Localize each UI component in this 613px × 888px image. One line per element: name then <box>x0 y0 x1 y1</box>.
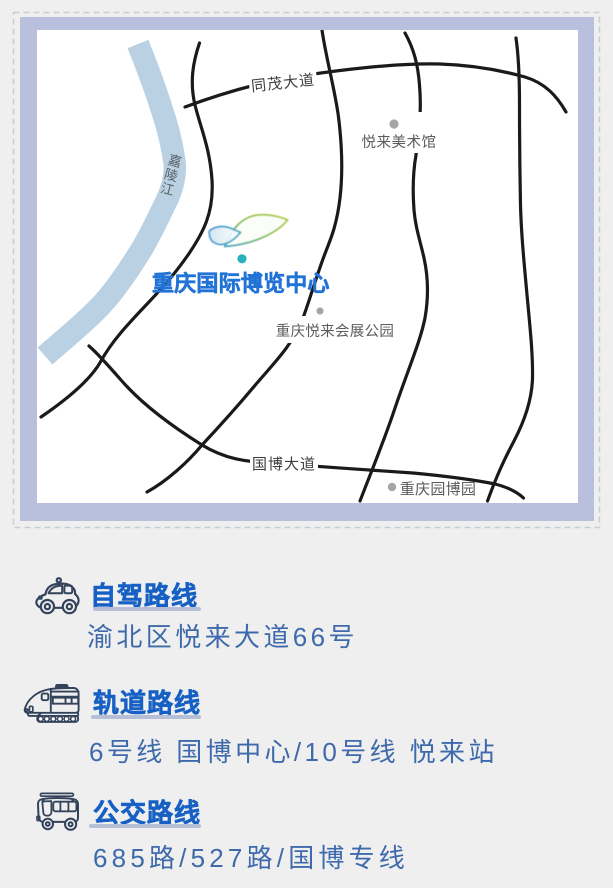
svg-text:重庆国际博览中心: 重庆国际博览中心 <box>152 271 330 296</box>
svg-text:国博大道: 国博大道 <box>252 456 316 473</box>
svg-text:重庆园博园: 重庆园博园 <box>400 481 477 498</box>
svg-text:重庆悦来会展公园: 重庆悦来会展公园 <box>276 323 394 340</box>
svg-text:悦来美术馆: 悦来美术馆 <box>362 134 437 151</box>
